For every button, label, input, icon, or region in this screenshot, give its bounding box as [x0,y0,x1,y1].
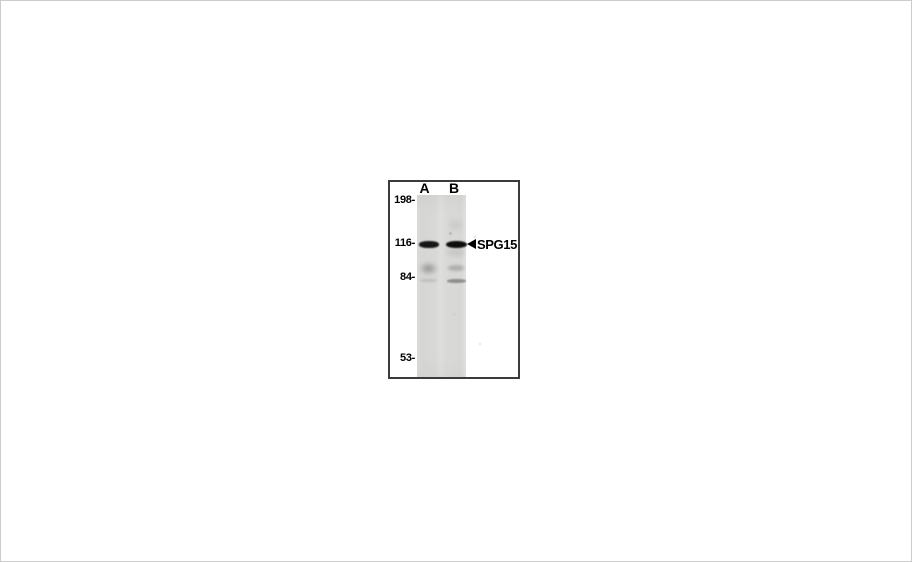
lane-label-a: A [419,181,429,195]
membrane-speck [449,232,452,235]
target-protein-annotation: SPG15 [467,237,517,251]
band-laneB-faint-smudge [449,220,462,230]
band-laneA-84kda-faint [420,279,437,282]
mw-marker-116: 116- [390,238,415,249]
band-laneB-82kda-faint [447,279,466,283]
target-protein-label: SPG15 [476,238,517,251]
mw-marker-84: 84- [390,272,415,283]
blot-figure-canvas: A B 198- 116- 84- 53- [0,0,912,562]
blot-figure-frame: A B 198- 116- 84- 53- [388,180,520,379]
lane-label-b: B [449,181,459,195]
left-arrowhead-icon [467,239,476,249]
band-laneB-shadow [447,249,465,256]
band-laneA-116kda [419,241,439,248]
band-laneB-116kda [446,241,467,249]
band-laneB-88kda-faint [448,265,464,271]
blot-figure-content: A B 198- 116- 84- 53- [390,182,518,377]
mw-marker-53: 53- [390,353,415,364]
membrane-speck [479,343,481,345]
band-laneA-90kda-smear [418,261,439,276]
mw-marker-198: 198- [390,195,415,206]
membrane-speck [453,313,455,315]
